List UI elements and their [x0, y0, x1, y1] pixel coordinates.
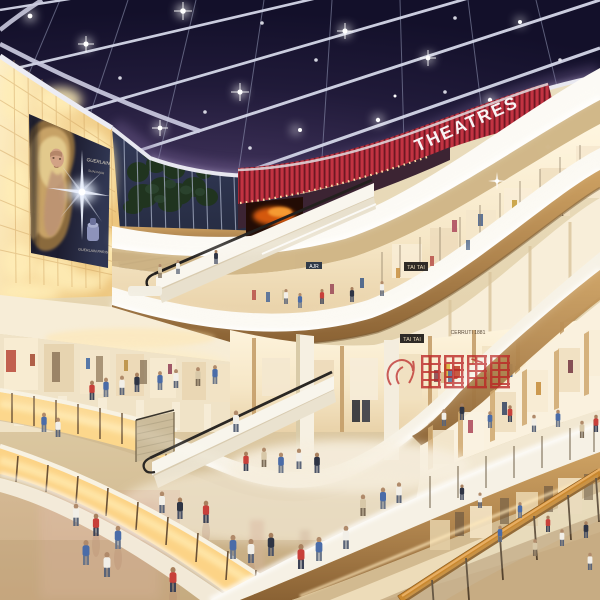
svg-text:AJR: AJR [309, 264, 319, 270]
svg-text:TAI TAI: TAI TAI [403, 337, 421, 343]
svg-text:TAI TAI: TAI TAI [407, 265, 425, 271]
svg-text:CERRUTI 1881: CERRUTI 1881 [451, 330, 486, 336]
